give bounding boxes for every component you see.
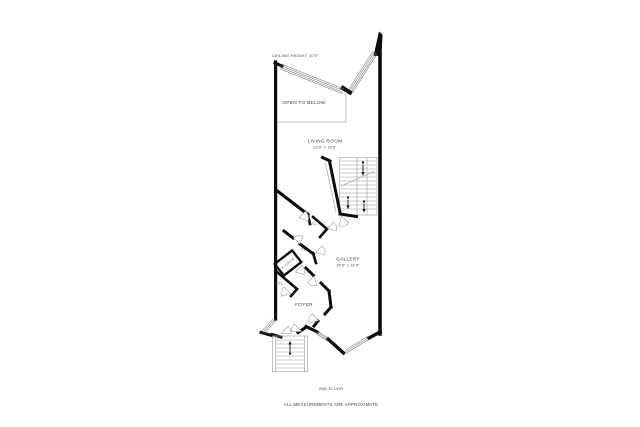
room-dims-gallery: 25'6" x 14'4" xyxy=(337,264,360,268)
room-dims-living-room: 32'8" x 19'6" xyxy=(314,146,337,150)
ceiling-height-note: CEILING HEIGHT: 10'0" xyxy=(272,53,319,58)
room-label-open-to-below: OPEN TO BELOW xyxy=(282,100,326,106)
floor-title: 2ND FLOOR xyxy=(319,386,344,391)
closet-label-1: CL. xyxy=(312,222,318,226)
disclaimer-text: ALL MEASUREMENTS ARE APPROXIMATE xyxy=(284,402,378,407)
upper-staircase xyxy=(323,158,378,217)
closet-label-2: CL. xyxy=(301,248,307,252)
floorplan-canvas: CEILING HEIGHT: 10'0" OPEN TO BELOW LIVI… xyxy=(0,0,640,427)
open-to-below-outline xyxy=(277,92,346,122)
room-label-living-room: LIVING ROOM xyxy=(308,139,343,145)
floorplan-page: CEILING HEIGHT: 10'0" OPEN TO BELOW LIVI… xyxy=(0,0,640,427)
closet-label-3: CL. xyxy=(278,282,284,286)
window-glazing xyxy=(262,51,378,353)
lower-staircase xyxy=(273,336,308,372)
door-arcs xyxy=(281,211,349,333)
room-label-gallery: GALLERY xyxy=(336,257,360,263)
room-label-foyer: FOYER xyxy=(295,302,313,308)
